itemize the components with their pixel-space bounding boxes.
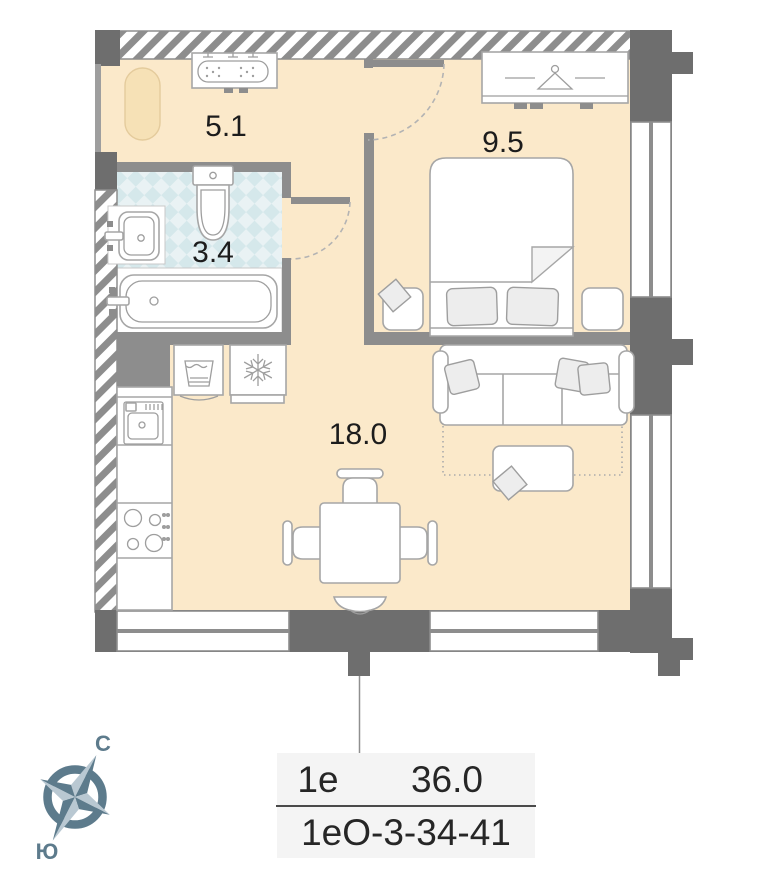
- wardrobe-foot: [580, 103, 593, 109]
- chair-backrest: [283, 521, 292, 565]
- pillow: [446, 287, 497, 326]
- nightstand: [582, 288, 623, 330]
- duct-shaft: [115, 345, 170, 387]
- flat-type-cell: 1е: [297, 759, 338, 800]
- wall-segment: [364, 133, 374, 345]
- chair-backrest: [428, 521, 437, 565]
- compass-rose: С Ю: [18, 731, 131, 864]
- wall-segment: [282, 258, 291, 334]
- bathtub: [107, 275, 277, 328]
- hall-rug: [125, 68, 160, 140]
- toilet: [193, 166, 233, 240]
- cabinet-foot: [239, 88, 248, 93]
- wardrobe-foot: [530, 103, 543, 109]
- wall-block: [95, 152, 117, 192]
- window-glazing-line: [649, 415, 653, 588]
- faucet-icon: [126, 403, 136, 411]
- wall-tab: [672, 52, 693, 74]
- flat-code-cell: 1еО-3-34-41: [301, 812, 511, 853]
- room-area-label-bathroom: 3.4: [192, 236, 234, 269]
- pillow: [506, 287, 558, 326]
- wall-segment: [282, 162, 291, 198]
- room-area-label-hallway: 5.1: [205, 110, 247, 143]
- chair: [343, 478, 377, 504]
- wall-tab: [672, 339, 693, 365]
- bedroom-door-leaf: [364, 60, 444, 67]
- sofa: [433, 345, 634, 425]
- chair: [293, 527, 321, 559]
- compass-south-label: Ю: [36, 839, 59, 864]
- window-glazing-line: [117, 629, 289, 633]
- room-area-label-bedroom: 9.5: [482, 126, 524, 159]
- sofa-armrest: [619, 351, 634, 413]
- hall-cabinet: [192, 53, 277, 88]
- thin-wall: [95, 64, 101, 154]
- wardrobe-foot: [514, 103, 527, 109]
- wall-segment: [98, 332, 291, 345]
- wardrobe: [482, 52, 628, 109]
- floor-plan-canvas: 5.1 3.4 9.5 18.0 1е 36.0 1еО-3-34-41 С Ю: [0, 0, 760, 890]
- chair: [399, 527, 427, 559]
- fridge: [230, 345, 286, 403]
- kitchen-counter: [117, 387, 172, 610]
- compass-north-label: С: [95, 731, 111, 756]
- cabinet-foot: [224, 88, 233, 93]
- bed: [430, 158, 573, 336]
- washing-machine: [174, 345, 223, 400]
- dining-table: [320, 503, 400, 583]
- area-cell: 36.0: [411, 759, 483, 800]
- bathroom-door-leaf: [291, 197, 350, 204]
- wall-block: [95, 30, 120, 66]
- window-glazing-line: [649, 122, 653, 297]
- wall-tab: [658, 653, 680, 676]
- window-glazing-line: [430, 629, 598, 633]
- faucet-icon: [107, 297, 129, 305]
- faucet-icon: [105, 232, 123, 240]
- chair-backrest: [337, 469, 383, 478]
- room-area-label-living: 18.0: [329, 418, 387, 451]
- wall-tab: [348, 652, 370, 676]
- pillow: [444, 359, 480, 395]
- info-table: 1е 36.0 1еО-3-34-41: [276, 676, 536, 858]
- sofa-armrest: [433, 351, 448, 413]
- floor-plan: 5.1 3.4 9.5 18.0 1е 36.0 1еО-3-34-41 С Ю: [0, 0, 760, 890]
- bathroom-sink: [105, 206, 165, 264]
- pillow: [578, 363, 611, 396]
